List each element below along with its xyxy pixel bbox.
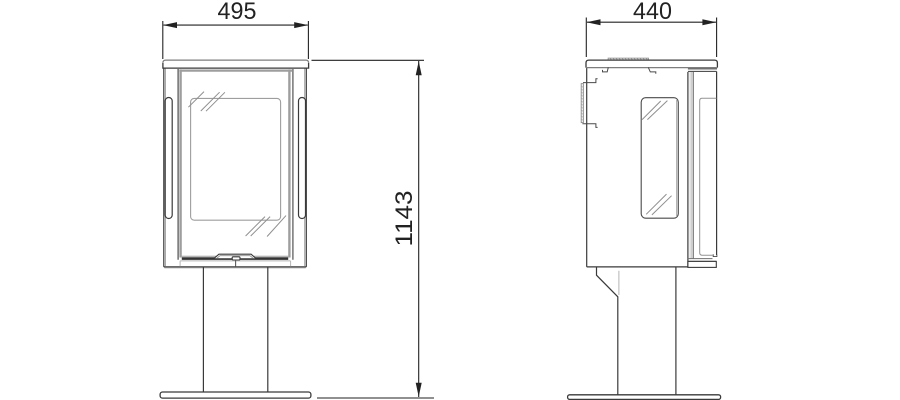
svg-text:1143: 1143 [391,191,418,247]
svg-text:440: 440 [633,0,672,25]
svg-text:495: 495 [218,0,257,25]
